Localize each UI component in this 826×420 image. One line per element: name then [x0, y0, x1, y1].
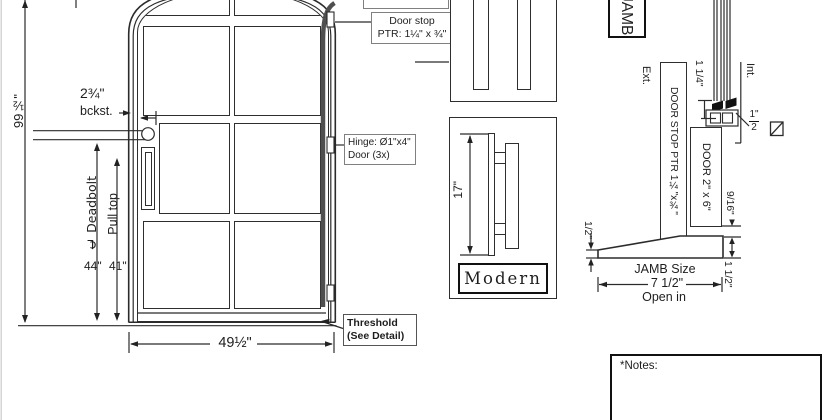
hinge-callout: Hinge: Ø1"x4" Door (3x): [344, 134, 416, 165]
glass-pane: [143, 0, 230, 16]
glass-pane: [143, 221, 230, 309]
notes-box: *Notes:: [610, 354, 822, 420]
weatherseal: [712, 101, 723, 113]
door-width-dim: 49½": [211, 335, 259, 351]
glass-pane: [234, 221, 321, 309]
door-stop-callout: Door stop PTR: 1¼" x ¾": [371, 12, 453, 44]
dimension-arrows: [22, 0, 735, 347]
threshold-lip-dim: 1/2": [582, 221, 593, 239]
glass-pane: [143, 26, 230, 116]
jamb-door-stop-bar: DOOR STOP PTR 1¼"x¾": [660, 62, 687, 240]
backset-label: bckst.: [80, 104, 113, 118]
handle-slot: [517, 0, 531, 90]
handle-slot: [473, 0, 489, 90]
stop-block: [706, 110, 738, 126]
handle-length-dim: 17": [451, 181, 465, 199]
square-bar-icon: [771, 122, 784, 136]
door-gap-dim: 9/16": [724, 191, 735, 215]
seal-dim: 1" 2: [749, 110, 759, 133]
jamb-door-label: DOOR 2" x 6": [700, 143, 712, 211]
glass-pane: [159, 123, 230, 214]
threshold-callout: Threshold (See Detail): [343, 314, 417, 346]
notes-label: *Notes:: [620, 360, 658, 372]
jamb-size-label: JAMB Size: [629, 262, 701, 276]
seal-dim-numerator: 1": [749, 110, 758, 120]
door-height-dim: 99½": [11, 94, 26, 128]
jamb-door-stop-label: DOOR STOP PTR 1¼"x¾": [668, 87, 679, 215]
jamb-size-dim: 7 1/2": [646, 276, 688, 290]
handle-side-view-panel: 17" Modern: [449, 117, 557, 299]
swing-label: Open in: [635, 290, 693, 304]
threshold-callout-line2: (See Detail): [347, 330, 404, 342]
threshold-height-dim: 1 1/2": [722, 261, 733, 288]
deadbolt-centerline-label: ℄ Deadbolt: [84, 176, 99, 252]
pull-top-label: Pull top: [106, 193, 120, 235]
handle-style-label: Modern: [464, 269, 542, 288]
stop-height-dim: 1 1/4": [693, 60, 704, 87]
jamb-title: JAMB: [617, 0, 635, 35]
seal-dim-denominator: 2: [751, 123, 757, 133]
hinge: [327, 12, 334, 27]
drawing-sheet: 99½" 2¾" bckst. ℄ Deadbolt Pull top 44" …: [0, 0, 826, 420]
jamb-door-section: DOOR 2" x 6": [690, 127, 722, 227]
glass-pane: [234, 26, 321, 116]
handle-style-box: Modern: [458, 263, 548, 294]
exterior-label: Ext.: [640, 66, 652, 85]
hinge-callout-line2: Door (3x): [348, 150, 390, 161]
threshold-callout-line1: Threshold: [347, 317, 398, 329]
handle-front-view-panel: [450, 0, 557, 102]
hinge-callout-line1: Hinge: Ø1"x4": [348, 137, 411, 148]
partial-callout-box: [363, 0, 449, 9]
door-stop-callout-line1: Door stop: [389, 15, 435, 28]
weatherseal: [726, 98, 737, 110]
door-pull-handle-inner: [145, 152, 152, 206]
door-stop-callout-line2: PTR: 1¼" x ¾": [378, 28, 447, 41]
door-leaf: [137, 0, 329, 322]
glass-pane: [234, 0, 321, 16]
deadbolt-height-dim: 44": [84, 259, 102, 273]
handle-bar: [505, 143, 519, 249]
interior-label: Int.: [744, 63, 756, 78]
backset-dim: 2¾": [80, 85, 104, 101]
jamb-title-box: JAMB: [608, 0, 646, 38]
glass-pane: [234, 123, 321, 214]
pull-height-dim: 41": [109, 259, 127, 273]
